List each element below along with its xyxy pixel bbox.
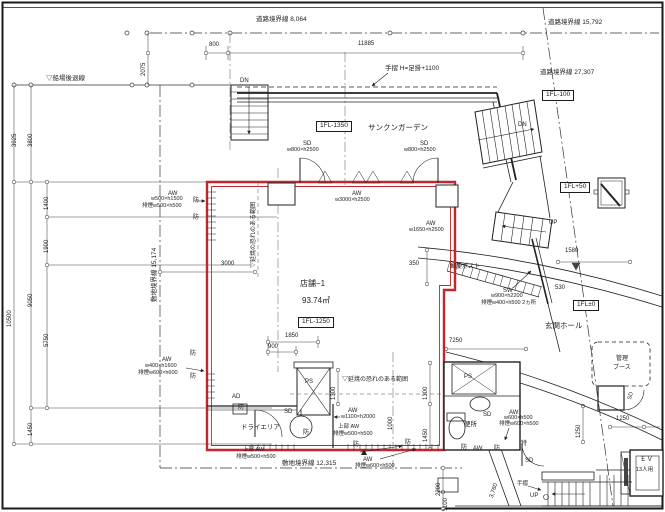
window-aw-left-3: 排煙w500×h500 <box>142 204 182 210</box>
room-shop-name: 店舗−1 <box>300 280 325 288</box>
dim-9050: 9050 <box>28 294 34 307</box>
window-aw-upper-mid-2: 排煙w500×h500 <box>333 432 373 438</box>
stair-up-right: UP <box>549 220 557 226</box>
window-aw-left-2: w500×h1500 <box>151 197 183 203</box>
dim-3000: 3000 <box>221 261 234 267</box>
fire-mark-bottom-aw: AW <box>473 446 482 452</box>
window-aw-upper-mid-1: 上部 AW <box>338 425 359 431</box>
fire-mark-left-4: 防 <box>190 374 196 380</box>
fire-mark-left-3: 防 <box>190 351 196 357</box>
level-1fl-plus50: 1FL+50 <box>560 182 590 193</box>
dim-1250-h: 1250 <box>616 416 629 422</box>
dim-3925: 3925 <box>12 134 18 147</box>
window-aw-left-lower-2: w400×h1600 <box>145 364 177 370</box>
label-toku: 特 <box>521 441 527 447</box>
window-aw-1650-2: w1650×h2500 <box>409 228 444 234</box>
room-management-1: 管理 <box>616 356 628 362</box>
site-boundary-12315: 敷地境界線 12,315 <box>282 461 336 468</box>
room-toilet: 便所 <box>464 422 477 429</box>
dim-11885: 11885 <box>358 41 374 47</box>
dim-1300-a: 1300 <box>331 387 337 400</box>
fire-mark-ad: 防 <box>238 405 244 411</box>
fire-range-vertical: ▽延焼の恐れのある範囲 <box>251 202 257 268</box>
dim-10500: 10500 <box>7 310 13 327</box>
dim-1580: 1580 <box>565 248 578 254</box>
senba-setback-line: ▽船場後退線 <box>46 76 85 83</box>
dim-1100: 1100 <box>443 498 449 511</box>
dim-1450-left: 1450 <box>28 423 34 436</box>
dim-3760: 3,760 <box>489 483 499 499</box>
door-sd-garden-left-2: w800×h2500 <box>287 148 319 154</box>
dim-7250: 7250 <box>449 338 462 344</box>
window-aw-3000-2: w3000×h2500 <box>335 198 370 204</box>
level-1fl-minus1350: 1FL-1350 <box>316 121 352 132</box>
road-boundary-15792: 道路境界線 15,792 <box>548 20 602 27</box>
room-ev: ＥＶ <box>640 457 653 464</box>
stair-dn-right: DN <box>518 122 527 128</box>
room-shop-area: 93.74㎡ <box>302 297 330 305</box>
level-1fl-minus1250: 1FL-1250 <box>298 317 334 328</box>
dim-5750: 5750 <box>44 334 50 347</box>
door-sd-entrance: SD <box>525 458 533 464</box>
dim-1300-b: 1300 <box>423 387 429 400</box>
handrail-note: 手摺 H=足掛+1100 <box>385 66 439 73</box>
door-sd-toilet: SD <box>483 412 491 418</box>
fire-mark-left-2: 防 <box>193 215 199 221</box>
dim-1900: 1900 <box>44 240 50 253</box>
fire-mark-bottom-1: 防 <box>353 442 359 448</box>
window-aw-upper-left-2: 排煙w500×h500 <box>236 455 276 461</box>
stair-dn-top: DN <box>240 78 249 84</box>
dim-2200: 2200 <box>436 483 442 496</box>
level-1fl-zero: 1FL±0 <box>573 300 599 311</box>
fire-mark-bottom-4: 防 <box>494 446 500 452</box>
door-sd-dry: SD <box>284 409 292 415</box>
room-ev-capacity: 13人用 <box>636 468 653 474</box>
dim-1000: 1000 <box>388 417 394 430</box>
vent-ad: AD <box>232 394 240 400</box>
road-boundary-8064: 道路境界線 8,064 <box>256 17 307 24</box>
road-boundary-27307: 道路境界線 27,307 <box>540 70 594 77</box>
dim-900: 900 <box>268 344 278 350</box>
floor-plan-canvas: 道路境界線 8,064道路境界線 15,792道路境界線 27,307敷地境界線… <box>0 0 665 512</box>
door-sd-garden-right-2: w800×h2500 <box>404 148 436 154</box>
dim-1450-b: 1450 <box>423 429 429 442</box>
dim-1250-v: 1250 <box>576 425 582 438</box>
room-management-2: ブース <box>613 365 631 371</box>
stair-up-bottom: UP <box>530 493 538 499</box>
label-layer: 道路境界線 8,064道路境界線 15,792道路境界線 27,307敷地境界線… <box>0 0 665 512</box>
fire-mark-sd: 防 <box>303 430 309 436</box>
level-1fl-minus100: 1FL-100 <box>542 90 574 101</box>
dim-1400: 1400 <box>44 197 50 210</box>
fire-mark-bottom-3: 防 <box>461 445 467 451</box>
window-aw-bottom-2: 排煙w600×h500 <box>355 464 395 470</box>
dim-2075: 2075 <box>141 63 147 76</box>
window-aw-1100-2: w1100×h2000 <box>341 415 375 421</box>
window-aw-upper-left-1: 上部 AW <box>243 448 264 454</box>
window-aw-left-lower-3: 排煙w600×h600 <box>138 371 178 377</box>
window-sw-entrance-2: w900×h2200 <box>491 294 523 300</box>
handrail-bottom: 手摺 <box>517 482 528 488</box>
mail-post: 郵便ポスト <box>450 264 480 270</box>
fire-mark-left-1: 防 <box>193 198 199 204</box>
fire-range-horizontal: ▽延焼の恐れのある範囲 <box>342 377 408 383</box>
dim-3800: 3800 <box>28 134 34 147</box>
dim-530: 530 <box>555 285 565 291</box>
site-boundary-15174: 敷地境界線 15,174 <box>152 248 159 302</box>
dim-800: 800 <box>209 42 219 48</box>
window-aw-toilet-3: 排煙w600×h500 <box>499 422 539 428</box>
window-sw-entrance-3: 排煙w400×h500 2ヵ所 <box>481 301 536 307</box>
dim-350: 350 <box>409 261 419 267</box>
fire-mark-bottom-2: 防 <box>405 440 411 446</box>
ps-shaft-2: PS <box>464 374 472 380</box>
room-entrance-hall: 玄関ホール <box>545 322 583 330</box>
room-sunken-garden: サンクンガーデン <box>368 124 428 132</box>
ps-shaft-1: PS <box>305 379 313 385</box>
door-sd-booth: SD <box>628 392 635 401</box>
room-dry-area: ドライエリア <box>241 425 280 432</box>
dim-1850: 1850 <box>285 333 298 339</box>
